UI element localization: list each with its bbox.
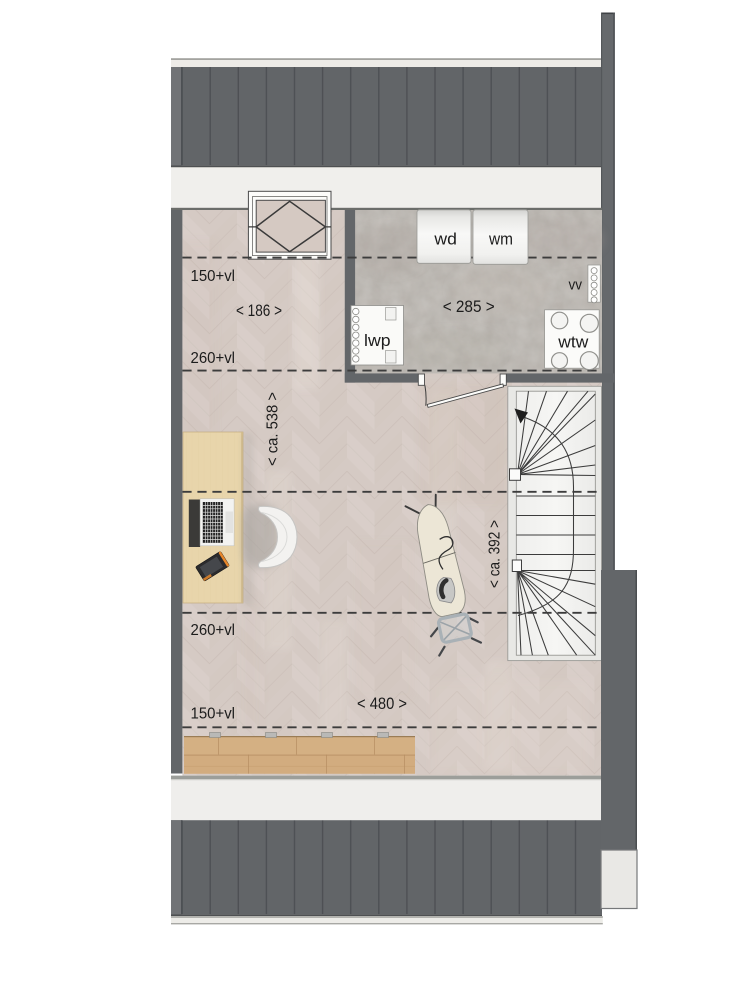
svg-text:wd: wd (433, 229, 457, 248)
svg-text:150+vl: 150+vl (191, 706, 236, 723)
svg-text:150+vl: 150+vl (191, 268, 236, 285)
svg-text:< 285 >: < 285 > (443, 298, 495, 316)
svg-text:lwp: lwp (364, 331, 391, 350)
svg-text:wtw: wtw (557, 332, 589, 351)
svg-text:< ca. 392 >: < ca. 392 > (487, 520, 504, 588)
svg-text:< 480 >: < 480 > (357, 695, 407, 713)
svg-text:260+vl: 260+vl (191, 622, 236, 639)
svg-text:vv: vv (568, 278, 582, 294)
svg-text:< 186 >: < 186 > (236, 302, 282, 320)
svg-text:wm: wm (488, 229, 513, 248)
svg-text:260+vl: 260+vl (191, 350, 236, 367)
svg-text:< ca. 538 >: < ca. 538 > (265, 392, 282, 466)
